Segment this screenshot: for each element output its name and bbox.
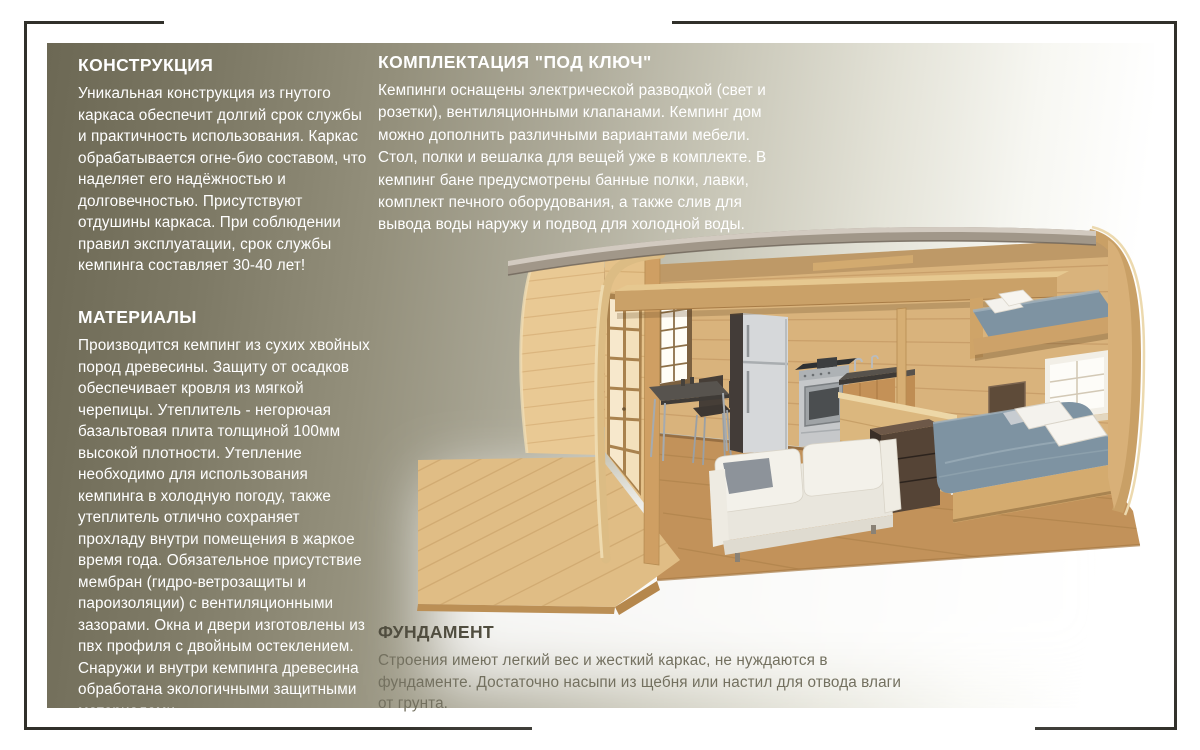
materials-body: Производится кемпинг из сухих хвойных по… [78,335,370,722]
materials-title: МАТЕРИАЛЫ [78,307,370,328]
construction-title: КОНСТРУКЦИЯ [78,55,370,76]
turnkey-body: Кемпинги оснащены электрической разводко… [378,80,792,237]
camping-house-illustration [393,213,1163,623]
foundation-body: Строения имеют легкий вес и жесткий карк… [378,650,908,715]
section-construction: КОНСТРУКЦИЯ Уникальная конструкция из гн… [78,55,370,277]
corner-frame-top-left [24,21,164,24]
corner-frame-top-right [672,21,1177,24]
gradient-panel: КОНСТРУКЦИЯ Уникальная конструкция из гн… [47,43,1154,708]
corner-frame-left [24,21,27,730]
turnkey-title: КОМПЛЕКТАЦИЯ "ПОД КЛЮЧ" [378,52,792,73]
corner-frame-bottom-left [24,727,532,730]
section-turnkey: КОМПЛЕКТАЦИЯ "ПОД КЛЮЧ" Кемпинги оснащен… [378,52,792,237]
section-materials: МАТЕРИАЛЫ Производится кемпинг из сухих … [78,307,370,722]
construction-body: Уникальная конструкция из гнутого каркас… [78,83,370,277]
corner-frame-right [1174,21,1177,730]
foundation-title: ФУНДАМЕНТ [378,622,908,643]
section-foundation: ФУНДАМЕНТ Строения имеют легкий вес и же… [378,622,908,715]
corner-frame-bottom-right [1035,727,1177,730]
fridge [730,313,788,453]
